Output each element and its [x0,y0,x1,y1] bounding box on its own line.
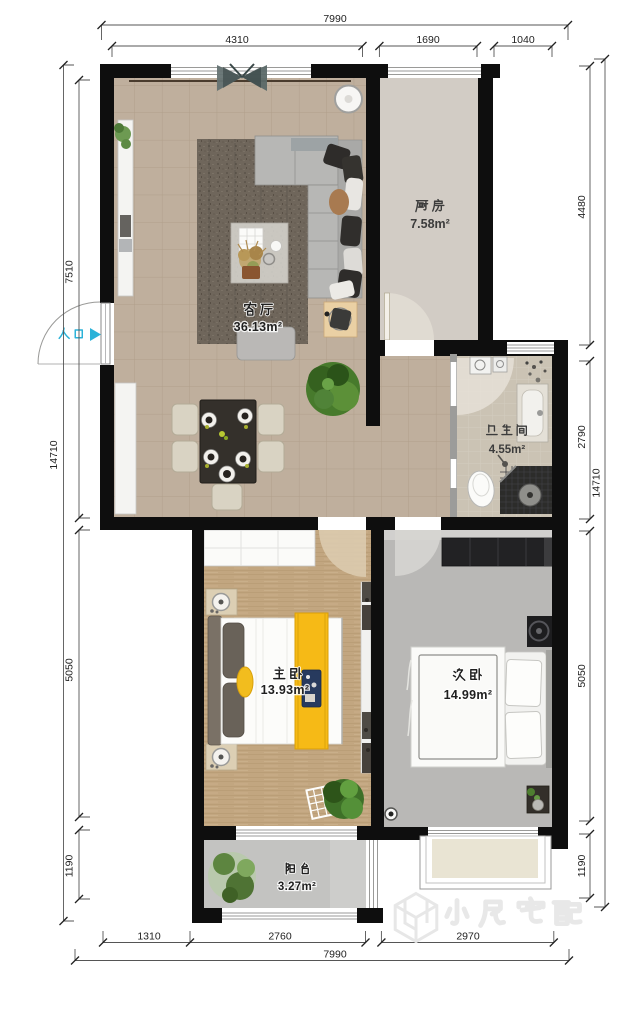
svg-text:3.27m²: 3.27m² [278,881,316,893]
svg-text:1040: 1040 [511,34,535,46]
svg-text:36.13m²: 36.13m² [234,320,283,334]
svg-text:2970: 2970 [456,931,480,943]
svg-text:1310: 1310 [137,931,161,943]
svg-text:7510: 7510 [64,260,76,284]
svg-text:7990: 7990 [323,13,347,25]
svg-text:2760: 2760 [268,931,292,943]
svg-text:14710: 14710 [591,468,603,497]
svg-text:14710: 14710 [48,440,60,469]
svg-text:7.58m²: 7.58m² [410,217,450,231]
svg-text:1190: 1190 [576,855,588,878]
svg-text:4310: 4310 [225,34,249,46]
svg-text:4.55m²: 4.55m² [489,444,526,456]
svg-text:7990: 7990 [323,949,347,961]
svg-text:4480: 4480 [576,195,588,219]
svg-text:1690: 1690 [416,34,440,46]
svg-text:5050: 5050 [64,658,76,682]
svg-text:13.93m²: 13.93m² [261,683,310,697]
svg-text:2790: 2790 [576,425,588,449]
svg-text:14.99m²: 14.99m² [444,688,493,702]
svg-text:1190: 1190 [64,855,76,878]
svg-text:5050: 5050 [576,664,588,688]
